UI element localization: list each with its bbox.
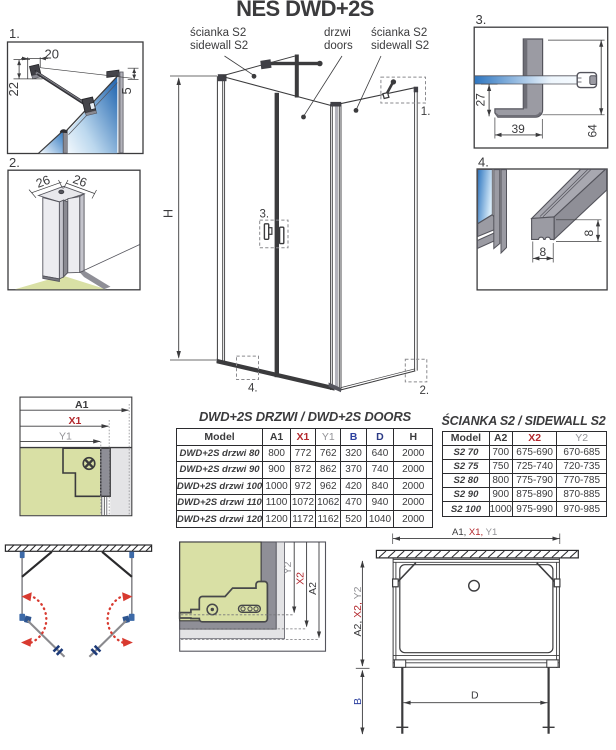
svg-text:X2: X2 [295, 572, 307, 585]
svg-text:64: 64 [585, 124, 599, 138]
svg-text:2.: 2. [9, 155, 20, 170]
svg-text:Y1: Y1 [59, 431, 72, 443]
svg-text:3.: 3. [260, 209, 270, 221]
svg-text:2.: 2. [420, 385, 430, 397]
svg-text:8: 8 [582, 230, 596, 237]
svg-text:4.: 4. [248, 383, 258, 395]
svg-text:39: 39 [512, 122, 526, 136]
svg-text:H: H [162, 209, 176, 218]
svg-text:5: 5 [119, 87, 134, 94]
svg-text:8: 8 [540, 245, 547, 259]
svg-text:X1: X1 [69, 415, 82, 427]
svg-text:26: 26 [34, 173, 52, 191]
svg-text:1.: 1. [421, 106, 431, 118]
svg-text:26: 26 [71, 172, 89, 190]
svg-text:B: B [352, 698, 364, 705]
svg-text:D: D [471, 690, 479, 702]
svg-text:A2: A2 [307, 582, 319, 595]
svg-text:20: 20 [45, 47, 59, 62]
svg-text:22: 22 [6, 82, 21, 96]
svg-text:4.: 4. [478, 155, 489, 170]
svg-text:3.: 3. [476, 12, 487, 27]
svg-text:1.: 1. [9, 26, 20, 41]
svg-text:27: 27 [473, 93, 487, 107]
svg-text:A2, X2, Y2: A2, X2, Y2 [352, 586, 364, 636]
svg-text:Y2: Y2 [282, 561, 294, 574]
svg-text:A1: A1 [75, 399, 89, 411]
